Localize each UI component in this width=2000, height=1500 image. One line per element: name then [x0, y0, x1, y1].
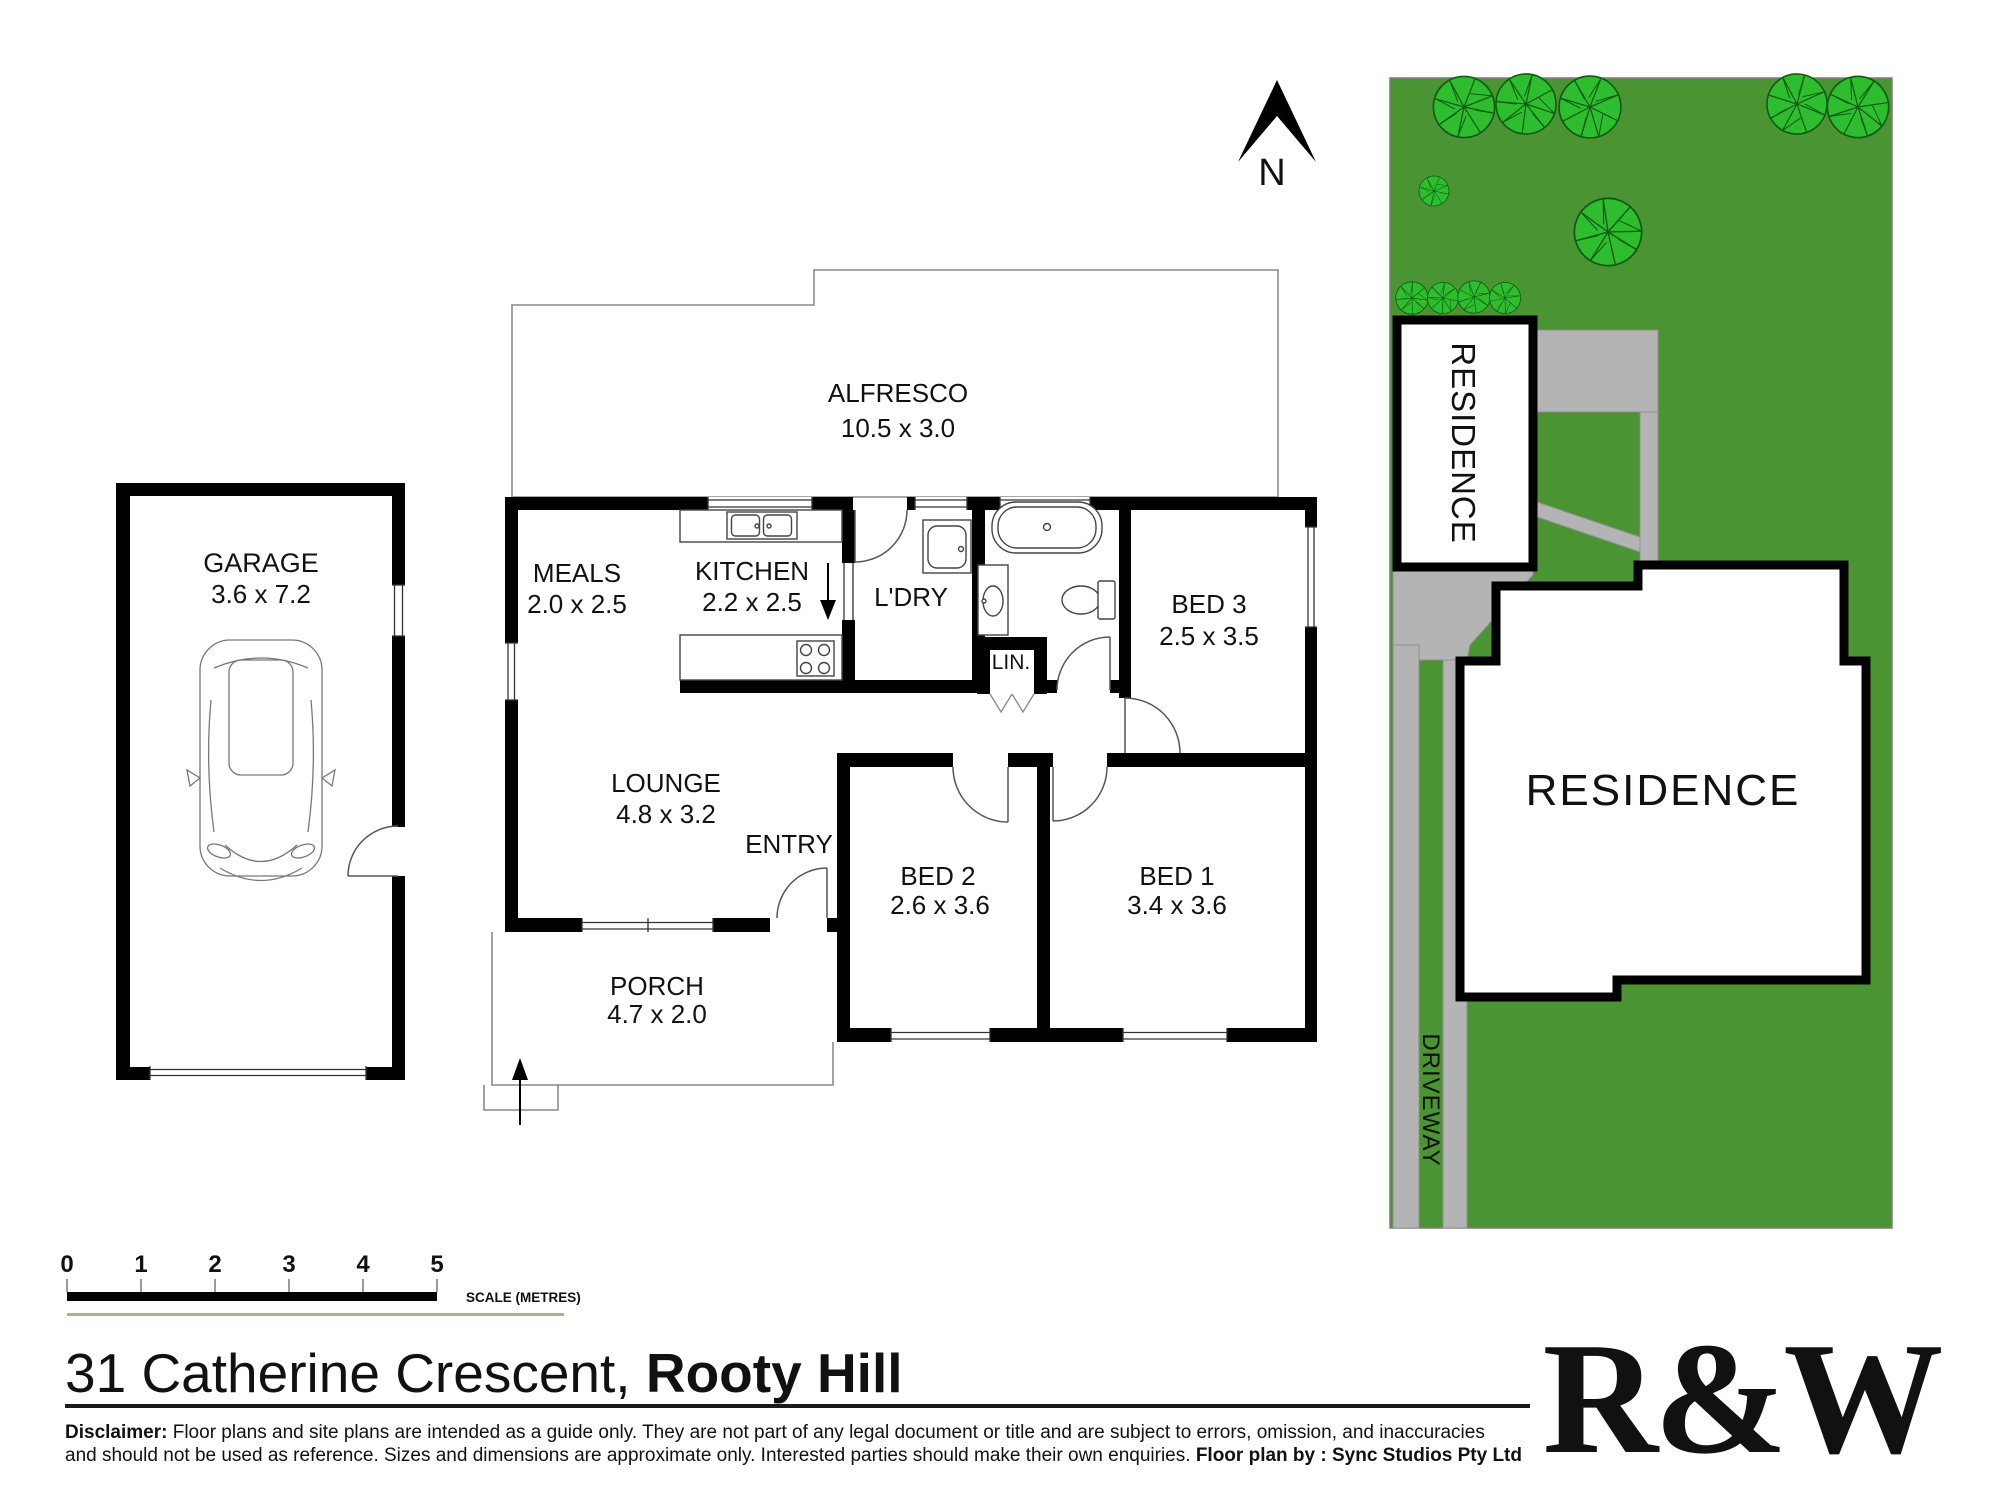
window-laundry	[915, 497, 967, 510]
disclaimer-line1: Disclaimer: Floor plans and site plans a…	[65, 1422, 1485, 1443]
room-label-bed1: BED 1	[1139, 861, 1214, 891]
footer: 31 Catherine Crescent, Rooty Hill Discla…	[65, 1309, 1941, 1487]
address-title: 31 Catherine Crescent, Rooty Hill	[65, 1342, 903, 1404]
scale-bar-rule	[67, 1292, 437, 1301]
room-label-kitchen: KITCHEN	[695, 556, 809, 586]
scale-bar: 0 1 2 3 4 5 SCALE (METRES)	[60, 1251, 580, 1316]
kitchen-passage-arrow-icon	[820, 563, 836, 620]
scale-ticks: 0 1 2 3 4 5	[60, 1251, 443, 1278]
room-label-lounge: LOUNGE	[611, 768, 721, 798]
room-label-bed2: BED 2	[900, 861, 975, 891]
scale-tick-1: 1	[134, 1251, 147, 1278]
window-meals	[505, 643, 518, 700]
disclaimer-text2: and should not be used as reference. Siz…	[65, 1445, 1196, 1466]
neighbor-residence-label: RESIDENCE	[1445, 342, 1482, 544]
floor-plan-page: RESIDENCE RESIDENCE DRIVEWAY N	[0, 0, 2000, 1500]
entry-door-swing	[777, 868, 827, 918]
bed1-door-swing	[1053, 767, 1107, 821]
scale-tick-4: 4	[356, 1251, 370, 1278]
room-dims-lounge: 4.8 x 3.2	[616, 799, 716, 829]
rw-logo: R&W	[1543, 1309, 1942, 1487]
room-label-linen: LIN.	[992, 651, 1031, 674]
address-street: 31 Catherine Crescent,	[65, 1342, 646, 1404]
room-label-laundry: L'DRY	[874, 582, 948, 612]
window-garage	[392, 585, 405, 636]
window-kitchen	[708, 497, 812, 510]
disclaimer-text1: Floor plans and site plans are intended …	[167, 1422, 1484, 1443]
room-label-bed3: BED 3	[1171, 589, 1246, 619]
svg-text:DRIVEWAY: DRIVEWAY	[1417, 1033, 1444, 1166]
bathroom-door-swing	[1057, 637, 1110, 690]
north-arrow-icon: N	[1238, 80, 1316, 194]
room-dims-porch: 4.7 x 2.0	[607, 999, 707, 1029]
room-dims-meals: 2.0 x 2.5	[527, 589, 627, 619]
vanity-basin	[978, 565, 1008, 635]
floor-plan-drawing: RESIDENCE RESIDENCE DRIVEWAY N	[0, 0, 2000, 1500]
room-dims-alfresco: 10.5 x 3.0	[841, 413, 955, 443]
car-icon	[187, 640, 335, 881]
window-bed1	[1123, 1028, 1227, 1042]
floor-plan-credit: Floor plan by : Sync Studios Pty Ltd	[1196, 1445, 1522, 1466]
site-plan: RESIDENCE RESIDENCE DRIVEWAY	[1390, 62, 1900, 1228]
room-label-alfresco: ALFRESCO	[828, 378, 968, 408]
window-lounge	[582, 918, 713, 932]
room-label-entry: ENTRY	[745, 829, 833, 859]
kitchen-cased-opening	[842, 563, 855, 620]
scale-tick-0: 0	[60, 1251, 73, 1278]
laundry-tub	[923, 520, 971, 573]
bed2-door-swing	[953, 767, 1008, 822]
laundry-door-swing	[855, 510, 907, 562]
scale-tick-3: 3	[282, 1251, 295, 1278]
linen-bifold-door	[990, 694, 1034, 712]
room-dims-bed3: 2.5 x 3.5	[1159, 621, 1259, 651]
scale-tick-marks	[67, 1279, 437, 1292]
tree-icon	[1433, 76, 1494, 137]
disclaimer-word: Disclaimer:	[65, 1422, 167, 1443]
garage-door-swing	[348, 826, 398, 876]
room-dims-bed2: 2.6 x 3.6	[890, 890, 990, 920]
window-bed2	[891, 1028, 990, 1042]
north-label: N	[1258, 152, 1285, 194]
bed3-door-swing	[1125, 698, 1180, 753]
scale-tick-5: 5	[430, 1251, 443, 1278]
svg-text:RESIDENCE: RESIDENCE	[1445, 342, 1482, 544]
driveway-strip-left	[1393, 645, 1419, 1228]
room-label-porch: PORCH	[610, 971, 704, 1001]
kitchen-counter-sink	[680, 510, 842, 542]
room-label-garage: GARAGE	[203, 548, 319, 578]
room-dims-kitchen: 2.2 x 2.5	[702, 587, 802, 617]
tree-icon	[1419, 176, 1449, 206]
room-dims-bed1: 3.4 x 3.6	[1127, 890, 1227, 920]
entry-arrow-icon	[512, 1058, 528, 1125]
kitchen-counter-stove	[680, 635, 842, 680]
scale-tick-2: 2	[208, 1251, 221, 1278]
scale-bar-label: SCALE (METRES)	[466, 1290, 581, 1305]
window-bed3	[1305, 527, 1317, 627]
footer-divider	[65, 1404, 1530, 1408]
garage-door-panel	[150, 1066, 366, 1080]
room-dims-garage: 3.6 x 7.2	[211, 579, 311, 609]
disclaimer-line2: and should not be used as reference. Siz…	[65, 1445, 1522, 1466]
toilet	[1062, 581, 1115, 619]
main-residence-label: RESIDENCE	[1526, 766, 1801, 815]
driveway-label: DRIVEWAY	[1417, 1033, 1444, 1166]
address-suburb: Rooty Hill	[646, 1342, 903, 1404]
bathtub	[992, 502, 1102, 553]
scale-bar-underline	[67, 1313, 564, 1316]
room-label-meals: MEALS	[533, 558, 621, 588]
